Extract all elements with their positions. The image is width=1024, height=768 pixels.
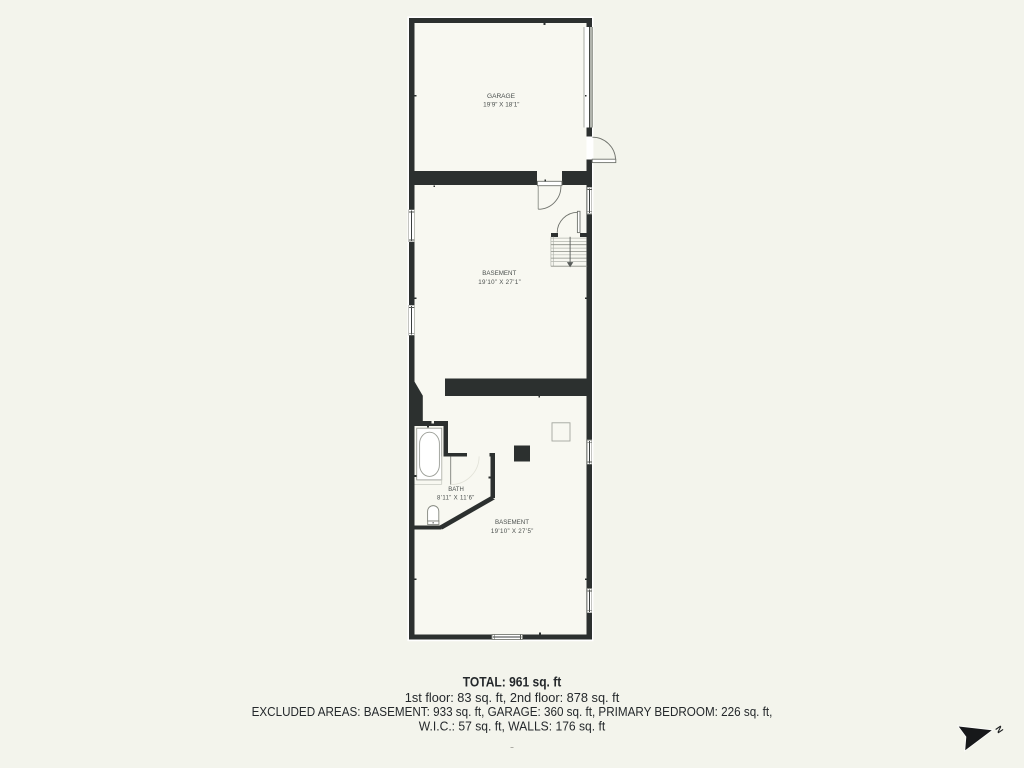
svg-text:GARAGE: GARAGE xyxy=(487,93,516,100)
svg-text:1st floor: 83 sq. ft, 2nd floo: 1st floor: 83 sq. ft, 2nd floor: 878 sq.… xyxy=(405,690,620,705)
svg-text:EXCLUDED AREAS: BASEMENT: 933: EXCLUDED AREAS: BASEMENT: 933 sq. ft, GA… xyxy=(252,704,773,719)
svg-text:19’9” X 18’1”: 19’9” X 18’1” xyxy=(483,102,519,109)
svg-text:19’10” X 27’1”: 19’10” X 27’1” xyxy=(478,279,521,286)
svg-text:8’11” X 11’6”: 8’11” X 11’6” xyxy=(437,495,475,501)
svg-text:BASEMENT: BASEMENT xyxy=(495,519,529,526)
svg-text:BATH: BATH xyxy=(448,487,464,493)
svg-text:BASEMENT: BASEMENT xyxy=(482,270,516,277)
svg-text:TOTAL: 961 sq. ft: TOTAL: 961 sq. ft xyxy=(463,675,562,690)
svg-text:19’10” X 27’5”: 19’10” X 27’5” xyxy=(491,528,534,535)
svg-text:W.I.C.: 57 sq. ft, WALLS: 176: W.I.C.: 57 sq. ft, WALLS: 176 sq. ft xyxy=(419,719,606,734)
